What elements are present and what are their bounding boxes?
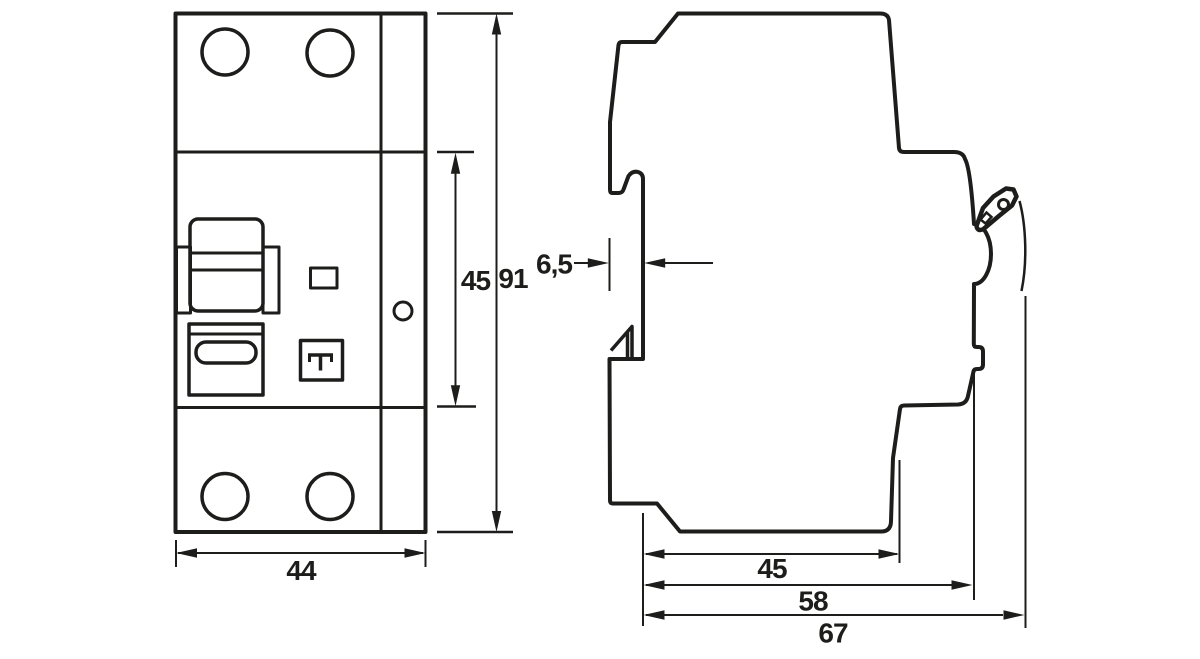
dimension-label-6-5: 6,5 xyxy=(536,249,572,280)
dimension-front-module-height: 45 xyxy=(437,152,490,407)
toggle-handle xyxy=(190,219,263,311)
dimension-label-91: 91 xyxy=(498,263,528,294)
arrowhead-left xyxy=(644,549,665,558)
arrowhead-left xyxy=(644,580,665,589)
arrowhead-down xyxy=(451,385,460,406)
arrowhead-right-pointing xyxy=(588,258,609,267)
toggle-ear-right xyxy=(263,247,279,313)
side-body-outline xyxy=(610,14,992,532)
arrowhead-right xyxy=(952,580,973,589)
arrowhead-left xyxy=(176,548,197,557)
arrowhead-down xyxy=(492,511,501,532)
dimension-side-front-offset: 6,5 xyxy=(536,238,713,291)
side-view xyxy=(610,14,1026,532)
terminal-screw-bottom-right xyxy=(307,474,353,520)
release-pill-window xyxy=(196,342,256,363)
toggle-lever-hole xyxy=(999,200,1009,210)
toggle-swing-arc xyxy=(1020,201,1026,291)
sealing-hole xyxy=(394,302,412,320)
toggle-lever-side xyxy=(977,189,1017,231)
terminal-screw-bottom-left xyxy=(202,474,248,520)
front-body-outline xyxy=(176,14,426,533)
status-indicator-window xyxy=(311,268,338,288)
dimension-side-total-depth: 67 xyxy=(644,296,1026,649)
terminal-screw-top-right xyxy=(307,30,353,76)
arrowhead-up xyxy=(492,14,501,35)
din-rail-latch xyxy=(611,327,632,358)
dimension-label-45-side: 45 xyxy=(757,553,787,584)
arrowhead-left xyxy=(644,610,665,619)
arrowhead-right xyxy=(405,548,426,557)
dimension-label-67: 67 xyxy=(818,618,848,649)
dimension-label-45: 45 xyxy=(461,265,491,296)
arrowhead-right xyxy=(1004,610,1025,619)
dimension-label-44: 44 xyxy=(286,555,317,586)
dimension-front-width: 44 xyxy=(176,540,426,586)
front-view xyxy=(176,14,426,533)
arrowhead-left-pointing xyxy=(644,258,665,267)
terminal-screw-top-left xyxy=(202,29,248,75)
dimension-side-body-depth: 58 xyxy=(644,374,975,617)
dimension-side-rail-depth: 45 xyxy=(644,460,900,584)
arrowhead-right xyxy=(879,549,900,558)
technical-drawing-page: 44 45 91 6,5 xyxy=(0,0,1200,659)
test-button-t-icon xyxy=(308,355,333,371)
rcd-release-window xyxy=(189,324,263,395)
dimension-label-58: 58 xyxy=(798,586,828,617)
test-button xyxy=(301,341,343,381)
toggle-switch xyxy=(177,219,280,313)
arrowhead-up xyxy=(451,153,460,174)
circuit-breaker-dimension-drawing: 44 45 91 6,5 xyxy=(0,0,1200,659)
